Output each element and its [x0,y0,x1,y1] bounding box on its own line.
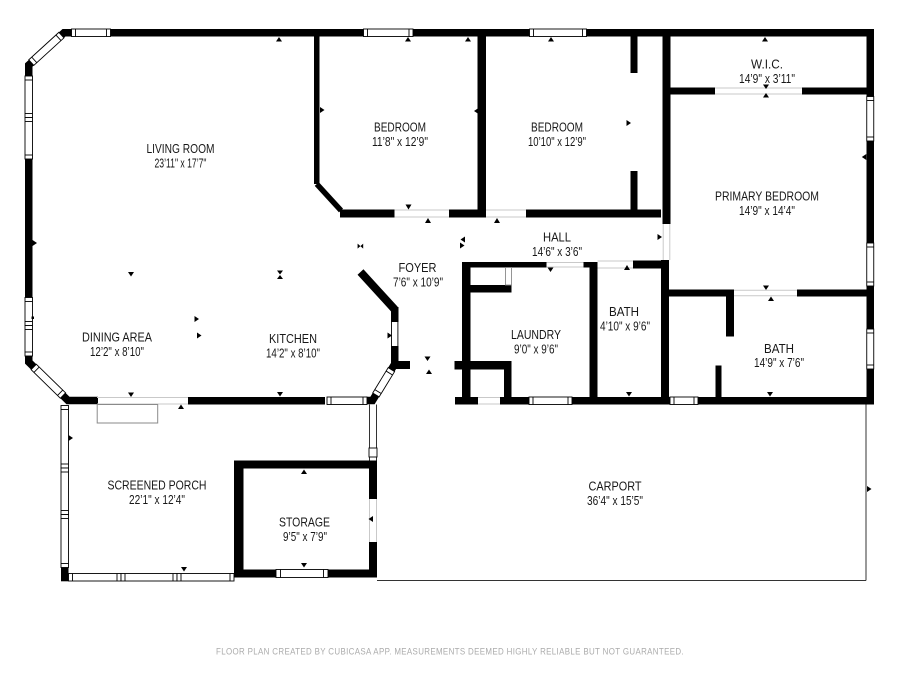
svg-text:11’8" x 12’9": 11’8" x 12’9" [372,135,428,149]
svg-text:4’10" x 9’6": 4’10" x 9’6" [600,320,650,334]
svg-text:BEDROOM: BEDROOM [374,120,426,135]
svg-text:W.I.C.: W.I.C. [751,57,783,72]
svg-text:LAUNDRY: LAUNDRY [511,327,561,342]
svg-text:KITCHEN: KITCHEN [269,331,317,346]
svg-text:14’2" x 8’10": 14’2" x 8’10" [266,347,320,361]
svg-text:FOYER: FOYER [399,260,437,275]
svg-text:BEDROOM: BEDROOM [531,120,583,135]
svg-text:14’9" x 3’11": 14’9" x 3’11" [739,72,795,86]
svg-text:22’1" x 12’4": 22’1" x 12’4" [129,493,185,507]
svg-text:14’6" x 3’6": 14’6" x 3’6" [532,245,582,259]
svg-text:12’2" x 8’10": 12’2" x 8’10" [90,345,144,359]
svg-text:STORAGE: STORAGE [279,515,330,530]
svg-text:LIVING ROOM: LIVING ROOM [147,141,215,156]
svg-text:FLOOR PLAN CREATED BY CUBICASA: FLOOR PLAN CREATED BY CUBICASA APP. MEAS… [216,647,684,657]
svg-text:36’4" x 15’5": 36’4" x 15’5" [587,494,643,508]
svg-text:9’0" x 9’6": 9’0" x 9’6" [514,343,558,357]
svg-text:14’9" x 14’4": 14’9" x 14’4" [739,204,795,218]
svg-text:CARPORT: CARPORT [589,479,642,494]
svg-text:14’9" x 7’6": 14’9" x 7’6" [754,356,804,370]
svg-text:7’6" x 10’9": 7’6" x 10’9" [393,276,443,290]
svg-text:9’5" x 7’9": 9’5" x 7’9" [283,530,327,544]
svg-text:23’11" x 17’7": 23’11" x 17’7" [155,157,207,171]
svg-text:SCREENED PORCH: SCREENED PORCH [108,478,207,493]
svg-text:PRIMARY BEDROOM: PRIMARY BEDROOM [715,189,819,204]
svg-text:BATH: BATH [764,341,794,356]
svg-text:DINING AREA: DINING AREA [82,330,152,345]
svg-text:10’10" x 12’9": 10’10" x 12’9" [528,135,586,149]
svg-text:BATH: BATH [609,304,639,319]
svg-text:HALL: HALL [543,230,571,245]
